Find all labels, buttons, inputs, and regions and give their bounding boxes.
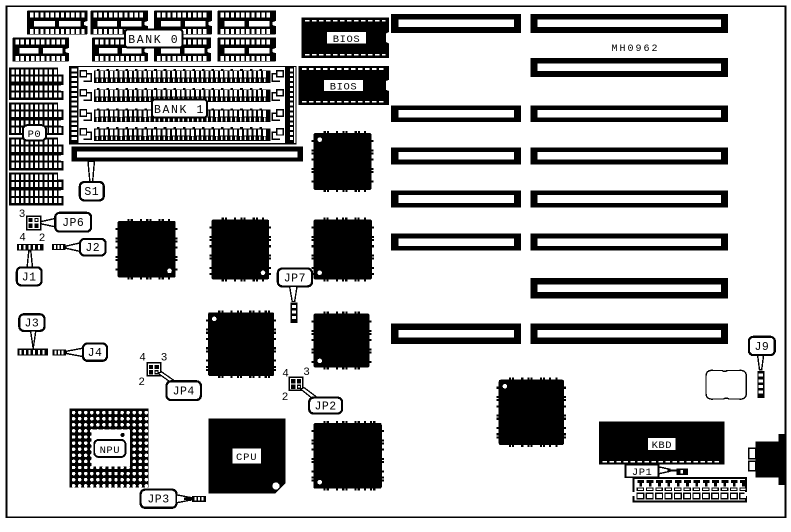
- svg-text:4: 4: [282, 369, 289, 381]
- svg-text:JP7: JP7: [284, 272, 306, 285]
- svg-text:KBD: KBD: [652, 440, 672, 452]
- svg-text:3: 3: [161, 352, 168, 364]
- svg-text:NPU: NPU: [100, 445, 120, 457]
- svg-text:4: 4: [19, 232, 26, 244]
- svg-text:BANK 1: BANK 1: [154, 104, 205, 117]
- svg-text:J3: J3: [24, 318, 39, 331]
- svg-text:JP3: JP3: [147, 494, 169, 507]
- svg-text:P0: P0: [28, 129, 42, 141]
- svg-text:J4: J4: [88, 347, 103, 360]
- svg-text:S1: S1: [84, 186, 99, 199]
- svg-text:2: 2: [282, 392, 289, 404]
- svg-text:3: 3: [303, 367, 310, 379]
- svg-text:BIOS: BIOS: [333, 34, 361, 46]
- svg-text:BIOS: BIOS: [330, 81, 358, 93]
- svg-text:4: 4: [139, 352, 146, 364]
- svg-text:3: 3: [19, 209, 26, 221]
- svg-text:J9: J9: [754, 341, 769, 354]
- svg-text:J1: J1: [22, 271, 37, 284]
- svg-text:JP4: JP4: [173, 386, 195, 399]
- svg-text:JP2: JP2: [314, 401, 336, 414]
- svg-text:JP1: JP1: [632, 467, 652, 479]
- svg-text:J2: J2: [85, 242, 100, 255]
- svg-text:MH0962: MH0962: [611, 44, 659, 55]
- svg-text:JP6: JP6: [62, 217, 84, 230]
- svg-text:2: 2: [39, 233, 46, 245]
- svg-text:2: 2: [138, 377, 145, 389]
- svg-text:BANK 0: BANK 0: [128, 34, 179, 47]
- svg-text:CPU: CPU: [236, 452, 257, 464]
